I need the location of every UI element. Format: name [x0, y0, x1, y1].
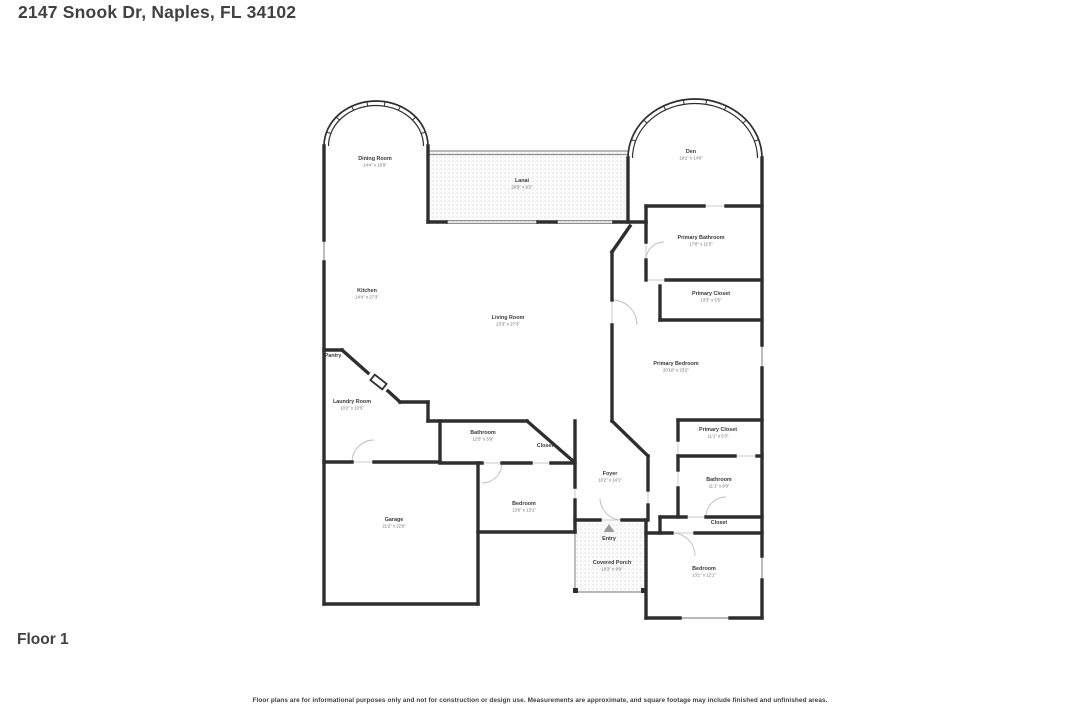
room-label: Dining Room14'4" x 16'9" — [358, 156, 392, 168]
room-name: Bedroom — [692, 566, 716, 572]
room-dimensions: 17'8" x 11'5" — [689, 242, 713, 247]
room-label: Closet — [711, 520, 728, 526]
door-openings-layer — [352, 206, 757, 533]
room-label: Primary Bedroom20'10" x 23'2" — [653, 361, 698, 373]
room-label: Garage21'2" x 22'6" — [382, 517, 406, 529]
room-label: Kitchen14'4" x 27'3" — [355, 288, 379, 300]
room-name: Foyer — [603, 471, 619, 477]
room-dimensions: 13'6" x 13'1" — [512, 508, 536, 513]
room-label: Closet — [537, 443, 554, 449]
room-label: Primary Bathroom17'8" x 11'5" — [677, 235, 724, 247]
room-name: Kitchen — [357, 288, 377, 294]
room-dimensions: 10'2" x 9'9" — [601, 567, 623, 572]
room-name: Primary Bathroom — [677, 235, 724, 241]
room-name: Laundry Room — [333, 399, 371, 405]
room-label: Primary Closet11'1" x 5'3" — [699, 427, 737, 439]
room-dimensions: 11'1" x 9'9" — [709, 484, 730, 489]
room-dimensions: 10'2" x 10'5" — [340, 406, 364, 411]
room-label: Bedroom13'1" x 12'1" — [692, 566, 716, 578]
room-label: Entry — [602, 536, 616, 542]
room-dimensions: 14'4" x 27'3" — [355, 295, 379, 300]
room-label: Bedroom13'6" x 13'1" — [512, 501, 536, 513]
bay-windows-layer — [324, 99, 762, 158]
room-label: Bathroom12'5" x 5'9" — [470, 430, 496, 442]
room-dimensions: 13'3" x 5'5" — [700, 298, 722, 303]
room-label: Living Room23'3" x 27'3" — [492, 315, 525, 327]
room-dimensions: 10'2" x 14'1" — [598, 478, 622, 483]
room-name: Bedroom — [512, 501, 536, 507]
room-name: Pantry — [325, 353, 342, 359]
room-name: Dining Room — [358, 156, 392, 162]
room-dimensions: 11'1" x 5'3" — [708, 434, 729, 439]
room-label: Foyer10'2" x 14'1" — [598, 471, 622, 483]
floor-plan-canvas: Dining Room14'4" x 16'9"Lanai26'9" x 9'2… — [0, 0, 1080, 720]
door-swings-layer — [352, 242, 726, 556]
floor-label: Floor 1 — [17, 631, 69, 649]
room-name: Primary Bedroom — [653, 361, 698, 367]
room-dimensions: 19'2" x 14'6" — [679, 156, 703, 161]
room-dimensions: 12'5" x 5'9" — [472, 437, 494, 442]
room-name: Covered Porch — [593, 560, 631, 566]
room-label: Laundry Room10'2" x 10'5" — [333, 399, 371, 411]
room-dimensions: 14'4" x 16'9" — [363, 163, 387, 168]
disclaimer-text: Floor plans are for informational purpos… — [0, 697, 1080, 704]
room-dimensions: 13'1" x 12'1" — [692, 573, 716, 578]
room-label: Bathroom11'1" x 9'9" — [706, 477, 732, 489]
room-name: Entry — [602, 536, 616, 542]
room-label: Primary Closet13'3" x 5'5" — [692, 291, 730, 303]
room-name: Bathroom — [706, 477, 732, 483]
room-dimensions: 20'10" x 23'2" — [663, 368, 689, 373]
room-name: Closet — [537, 443, 554, 449]
room-label: Den19'2" x 14'6" — [679, 149, 703, 161]
room-name: Garage — [385, 517, 404, 523]
room-name: Closet — [711, 520, 728, 526]
room-name: Bathroom — [470, 430, 496, 436]
room-name: Den — [686, 149, 696, 155]
room-dimensions: 26'9" x 9'2" — [511, 185, 533, 190]
room-name: Lanai — [515, 178, 530, 184]
dining-bay-window-icon — [324, 101, 428, 146]
room-dimensions: 23'3" x 27'3" — [496, 322, 520, 327]
room-name: Living Room — [492, 315, 525, 321]
room-label: Pantry — [325, 353, 342, 359]
room-name: Primary Closet — [692, 291, 730, 297]
room-name: Primary Closet — [699, 427, 737, 433]
room-dimensions: 21'2" x 22'6" — [382, 524, 406, 529]
